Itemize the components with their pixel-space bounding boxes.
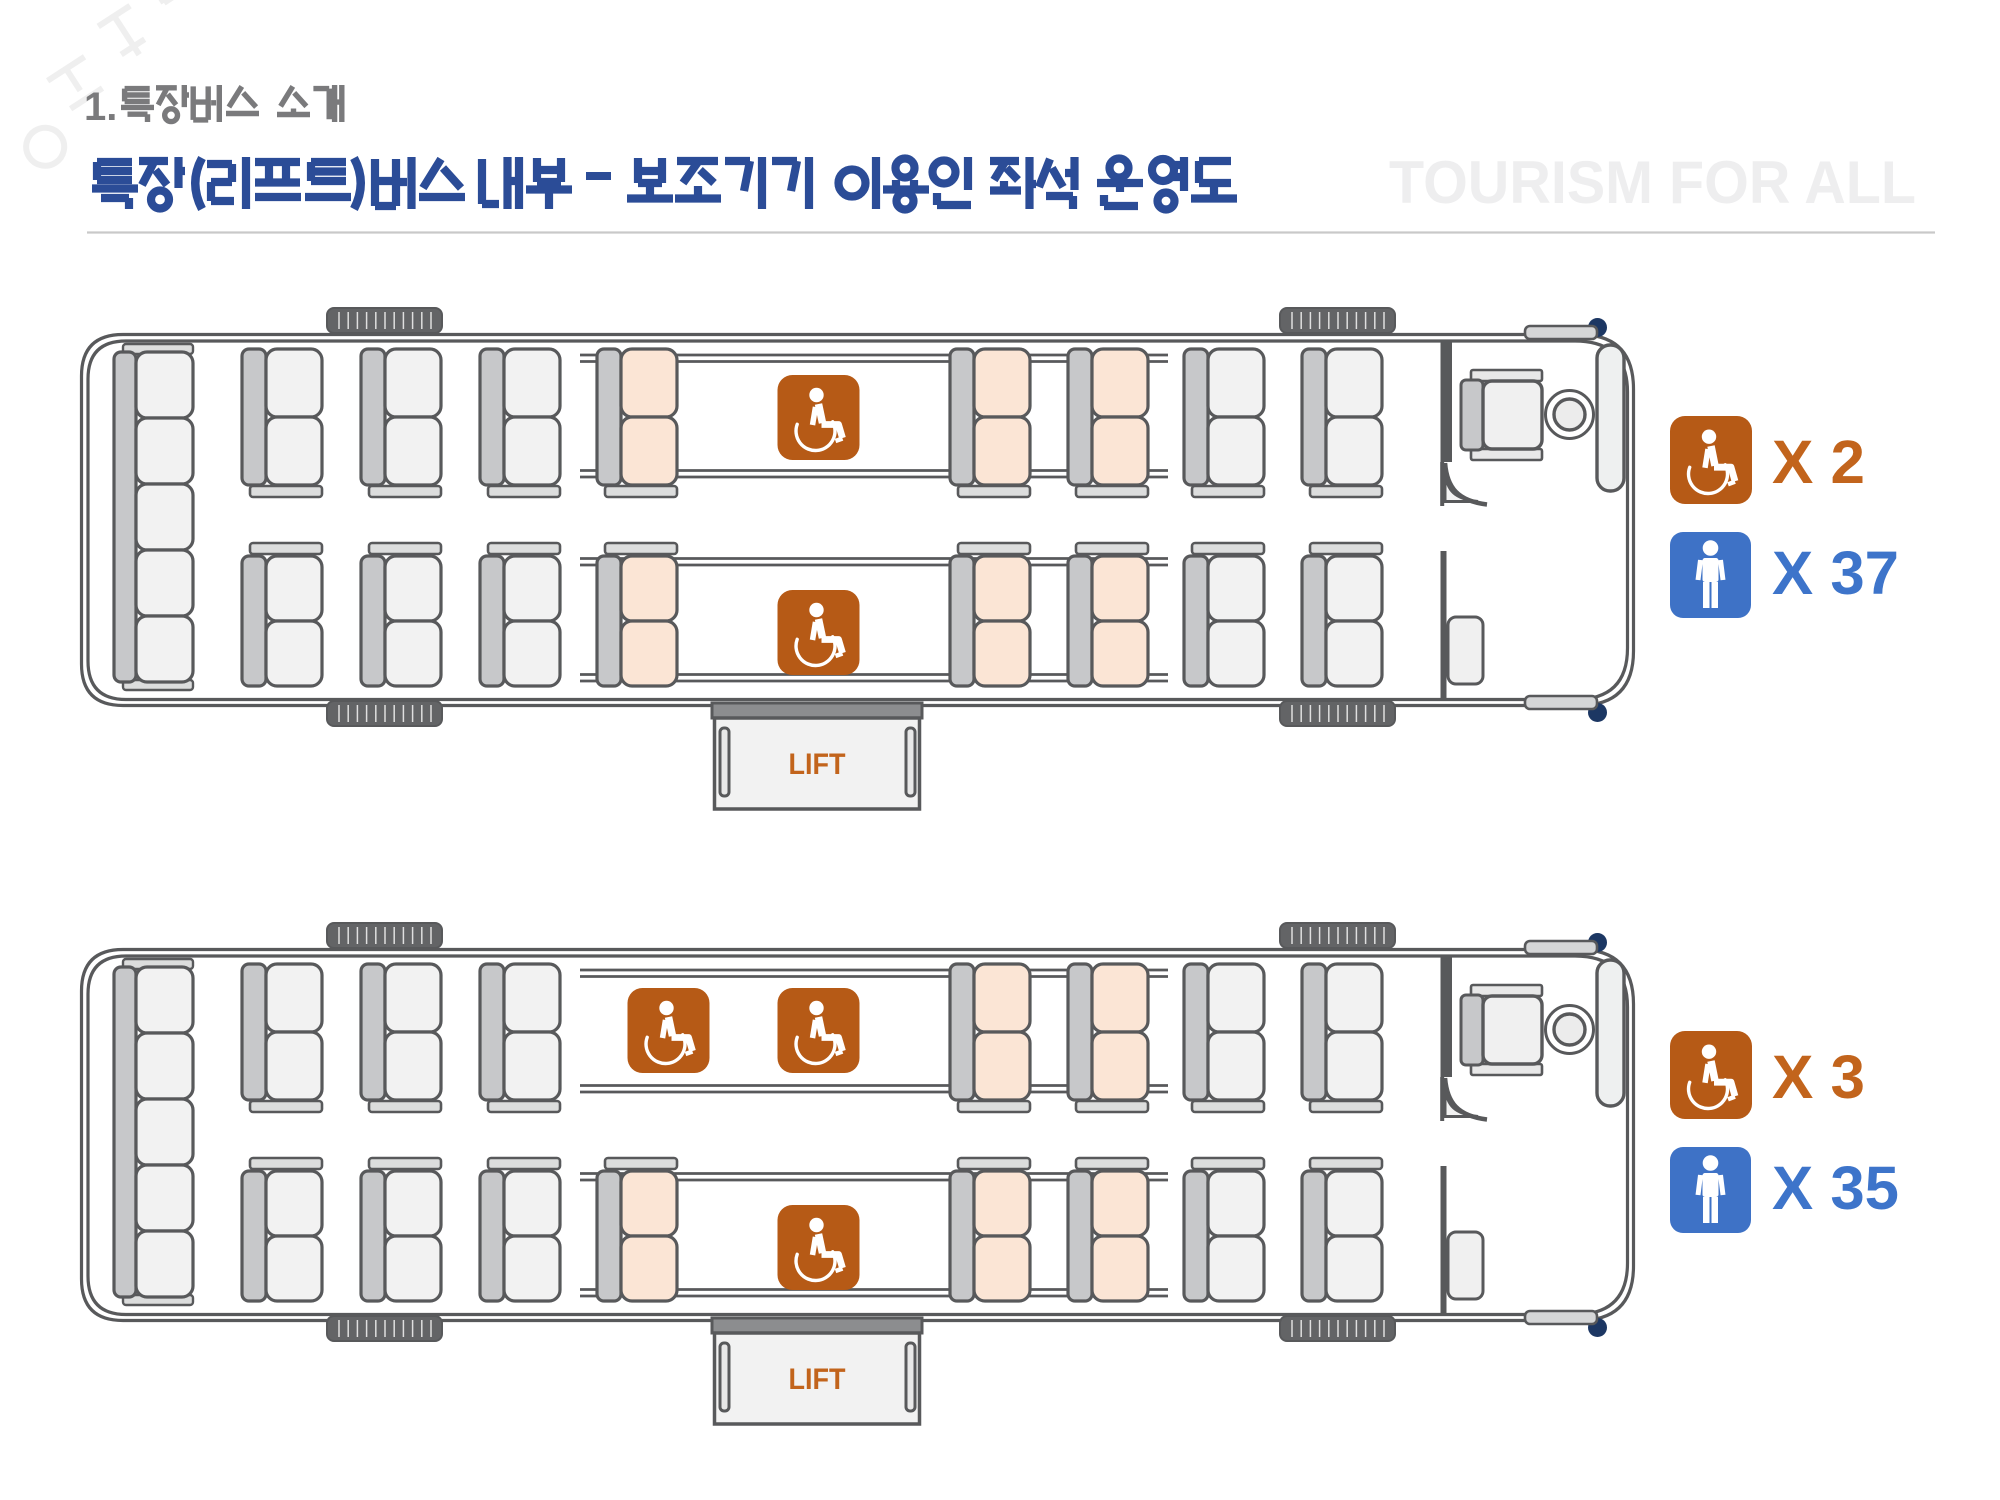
svg-text:LIFT: LIFT [789,1363,846,1396]
svg-text:X 3: X 3 [1772,1043,1865,1111]
svg-text:X 2: X 2 [1772,428,1865,496]
svg-text:X 35: X 35 [1772,1154,1899,1222]
svg-text:LIFT: LIFT [789,748,846,781]
svg-text:X 37: X 37 [1772,539,1899,607]
svg-text:1.: 1. [84,85,117,129]
svg-text:TOURISM FOR ALL: TOURISM FOR ALL [1389,149,1916,216]
